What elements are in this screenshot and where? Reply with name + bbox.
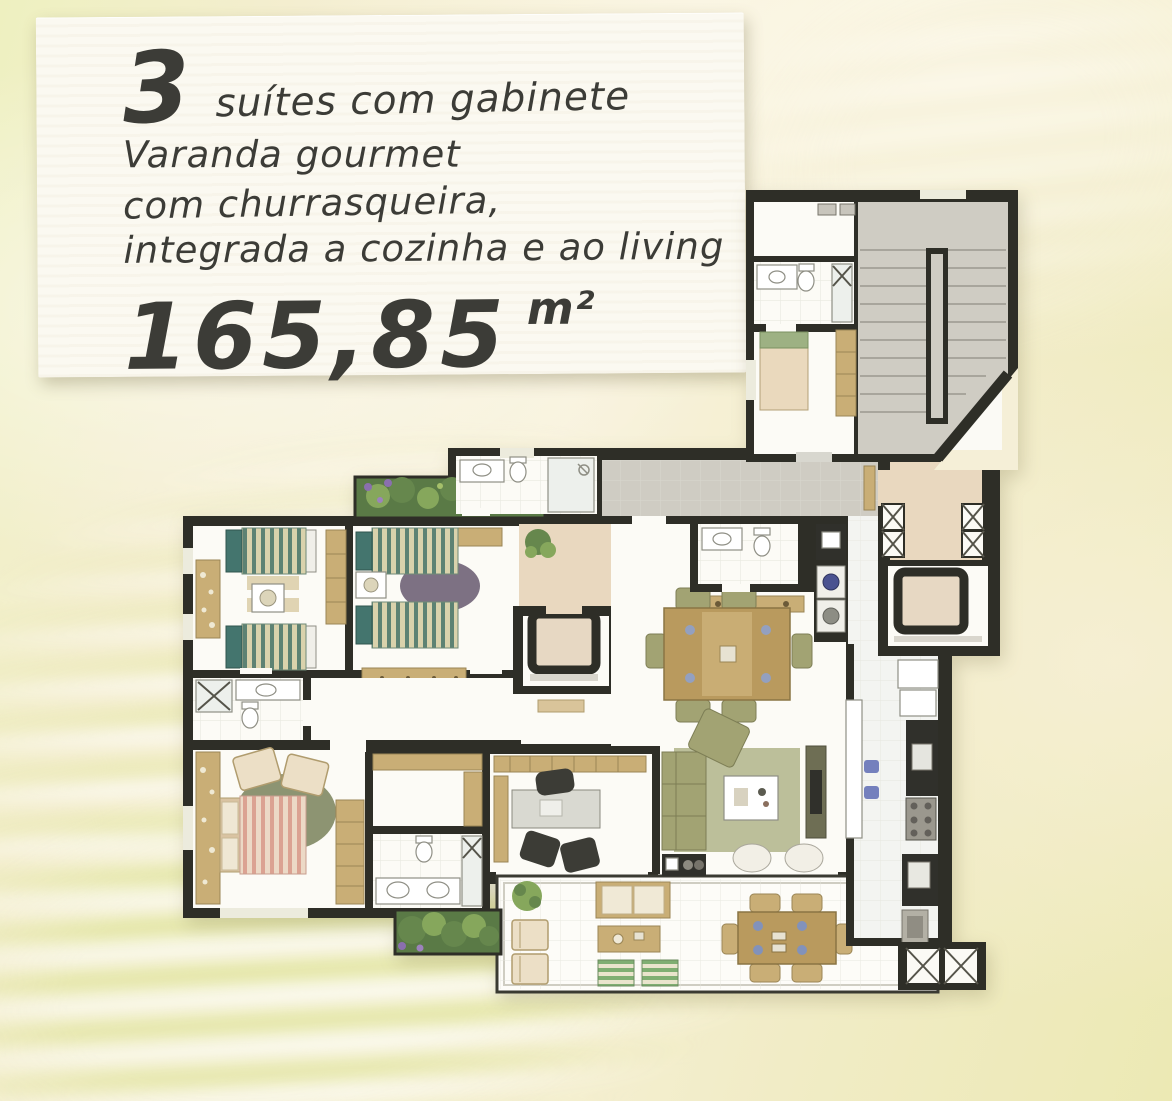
bar-stool xyxy=(864,786,879,799)
foyer xyxy=(521,694,611,744)
churrasqueira-grill xyxy=(662,854,706,876)
private-elevator-hall xyxy=(519,524,611,606)
suite-2-bathroom xyxy=(193,678,311,740)
pass-through-counter xyxy=(846,700,862,838)
bar-stool xyxy=(864,760,879,773)
brochure-page: 3 suítes com gabinete Varanda gourmet co… xyxy=(0,0,1172,1101)
freezer xyxy=(900,690,936,716)
maid-room xyxy=(754,324,856,462)
refrigerator xyxy=(898,660,938,688)
service-shafts xyxy=(898,942,986,990)
stair-wing xyxy=(746,190,1018,470)
office-gabinete xyxy=(490,754,652,874)
suite-1-bedroom xyxy=(353,526,521,688)
terrace-planter-box xyxy=(395,910,501,954)
wall-oven xyxy=(912,744,932,770)
lavabo xyxy=(690,516,814,592)
service-elevator xyxy=(888,566,988,646)
terrace-coffee-table xyxy=(598,926,660,952)
cooktop xyxy=(906,798,936,840)
terrace-daybed xyxy=(596,882,670,918)
service-core xyxy=(878,448,1000,656)
suite-2-bedroom xyxy=(183,526,346,674)
terrace-mat xyxy=(642,960,678,986)
microwave xyxy=(908,862,930,888)
suite-1-bathroom xyxy=(456,448,606,516)
master-suite-bedroom xyxy=(183,747,365,918)
floor-plan xyxy=(0,0,1172,1101)
private-elevator xyxy=(513,604,619,694)
maid-bathroom xyxy=(754,262,854,324)
master-bathroom xyxy=(373,834,482,908)
master-closet xyxy=(373,754,482,826)
terrace-mat xyxy=(598,960,634,986)
